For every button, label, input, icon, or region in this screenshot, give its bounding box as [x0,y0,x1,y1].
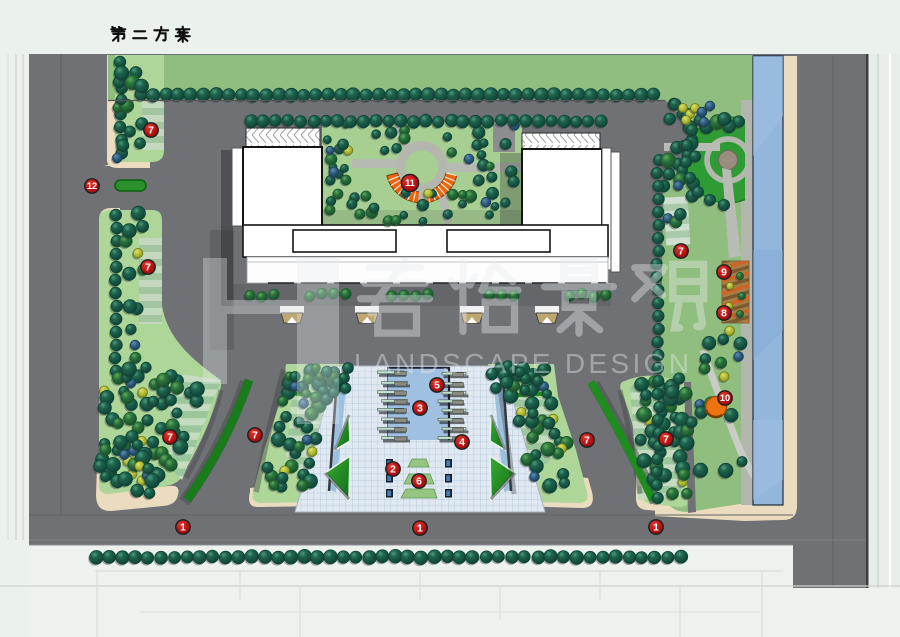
svg-text:7: 7 [252,430,258,441]
svg-text:7: 7 [148,125,154,136]
svg-text:7: 7 [663,434,669,445]
svg-text:2: 2 [390,464,396,475]
svg-text:8: 8 [721,308,727,319]
svg-text:5: 5 [434,380,440,391]
svg-text:6: 6 [416,476,422,487]
svg-text:7: 7 [678,246,684,257]
svg-text:10: 10 [720,393,730,403]
svg-text:1: 1 [653,522,659,533]
svg-text:7: 7 [167,432,173,443]
svg-text:1: 1 [417,523,423,534]
svg-text:LANDSCAPE DESIGN: LANDSCAPE DESIGN [354,348,696,379]
svg-text:4: 4 [459,437,465,448]
svg-text:11: 11 [405,178,415,188]
svg-text:7: 7 [584,435,590,446]
svg-text:7: 7 [145,262,151,273]
svg-text:12: 12 [87,181,97,191]
svg-text:9: 9 [721,267,727,278]
svg-text:1: 1 [180,522,186,533]
svg-text:3: 3 [417,403,423,414]
